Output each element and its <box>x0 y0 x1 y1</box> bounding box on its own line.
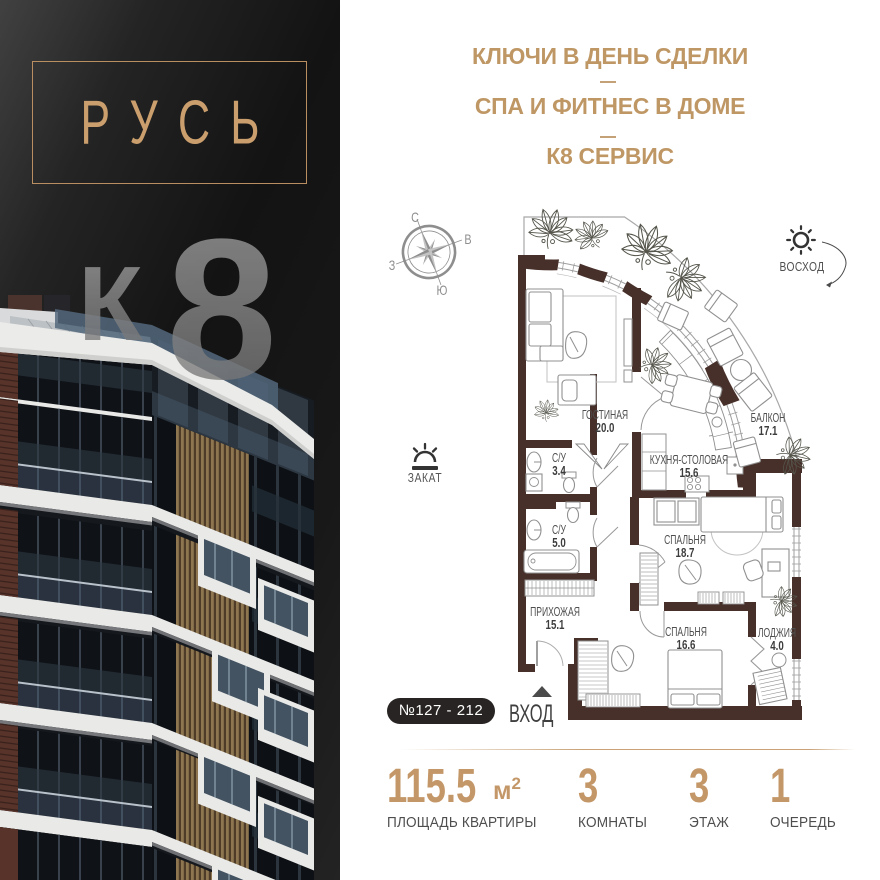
svg-text:С/У: С/У <box>552 523 567 537</box>
svg-text:15.6: 15.6 <box>680 467 699 480</box>
svg-text:5.0: 5.0 <box>552 537 566 550</box>
svg-text:15.1: 15.1 <box>546 619 565 632</box>
svg-text:ВОСХОД: ВОСХОД <box>780 261 825 274</box>
svg-text:16.6: 16.6 <box>677 639 696 652</box>
svg-text:СПАЛЬНЯ: СПАЛЬНЯ <box>664 533 706 547</box>
svg-text:В: В <box>464 232 471 247</box>
svg-text:С/У: С/У <box>552 451 567 465</box>
svg-text:17.1: 17.1 <box>759 425 778 438</box>
svg-text:20.0: 20.0 <box>596 422 615 435</box>
svg-text:БАЛКОН: БАЛКОН <box>751 411 786 425</box>
svg-text:4.0: 4.0 <box>770 640 784 653</box>
svg-text:С: С <box>411 210 419 225</box>
svg-text:18.7: 18.7 <box>676 547 695 560</box>
svg-text:З: З <box>389 258 396 273</box>
svg-text:СПАЛЬНЯ: СПАЛЬНЯ <box>665 625 707 639</box>
svg-text:ЛОДЖИЯ: ЛОДЖИЯ <box>758 626 796 640</box>
svg-text:ЗАКАТ: ЗАКАТ <box>408 472 443 485</box>
svg-text:ГОСТИНАЯ: ГОСТИНАЯ <box>582 408 628 422</box>
svg-text:Ю: Ю <box>437 283 448 298</box>
svg-text:КУХНЯ-СТОЛОВАЯ: КУХНЯ-СТОЛОВАЯ <box>650 453 728 467</box>
svg-text:ВХОД: ВХОД <box>509 701 553 728</box>
svg-text:3.4: 3.4 <box>552 465 566 478</box>
svg-text:ПРИХОЖАЯ: ПРИХОЖАЯ <box>530 605 580 619</box>
